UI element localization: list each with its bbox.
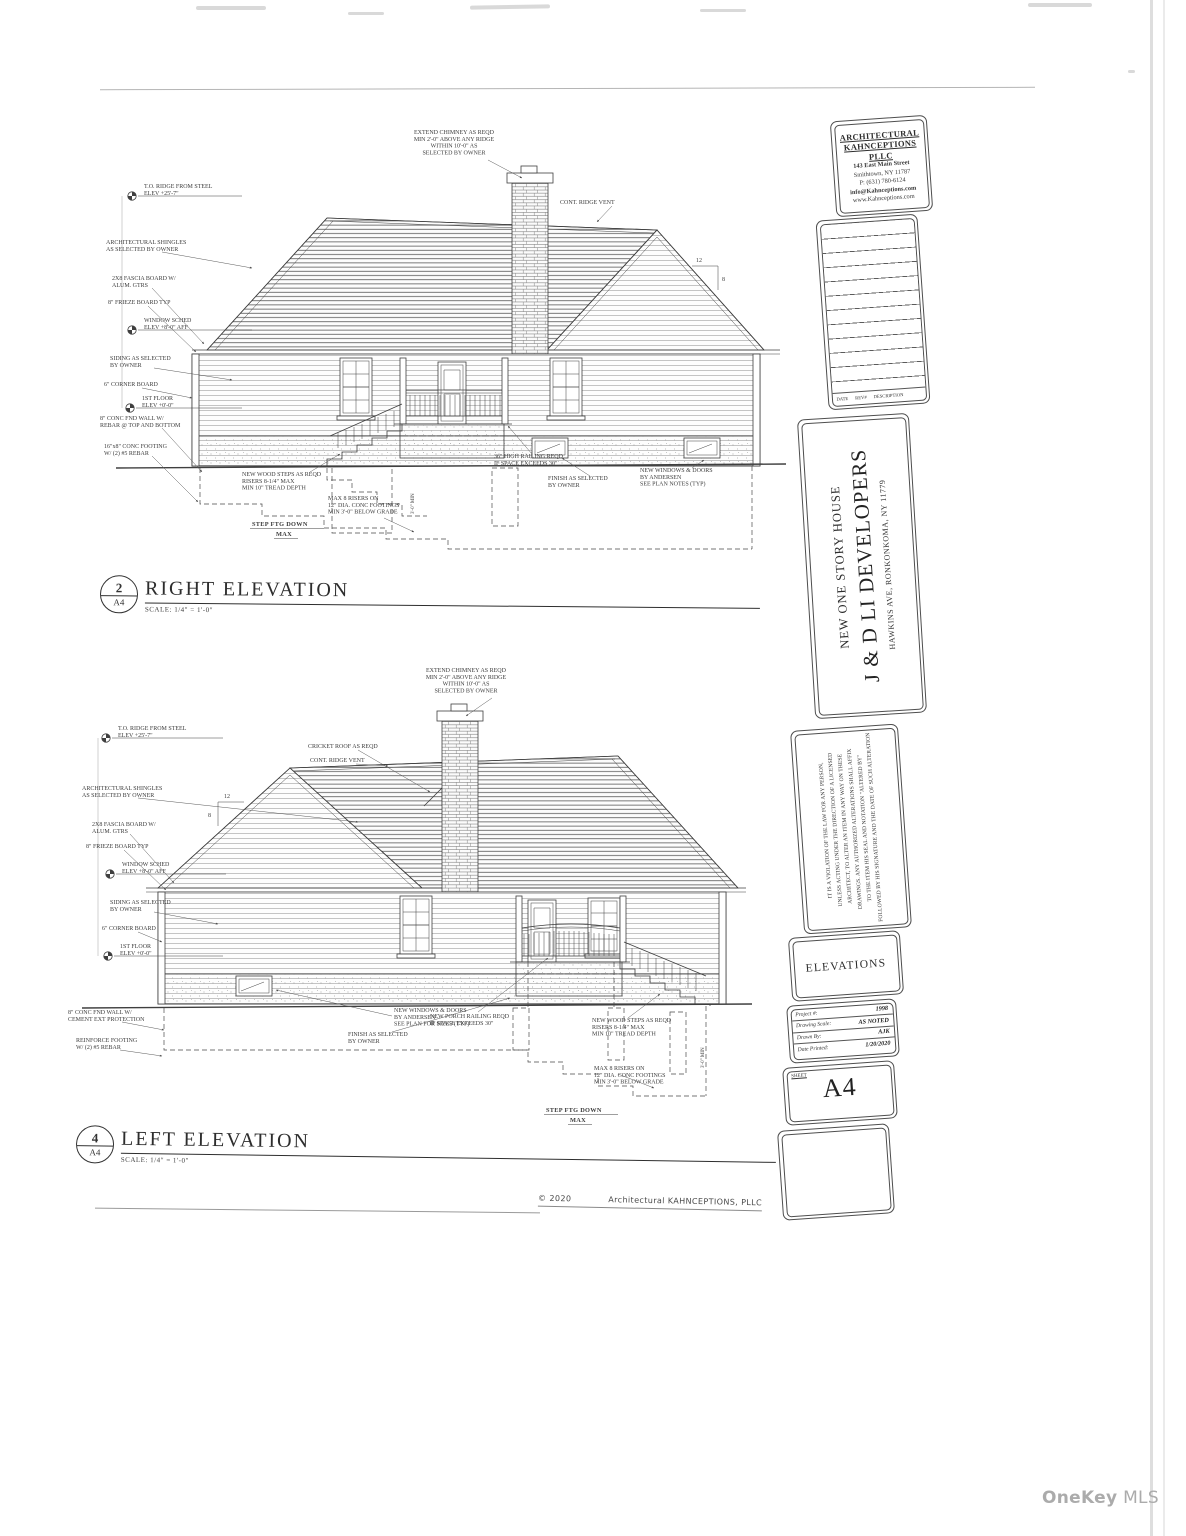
sheet-bottom-border (95, 1208, 540, 1214)
scan-artifact (470, 4, 550, 9)
drawn-by-value: AJK (878, 1028, 890, 1036)
finish-note: FINISH AS SELECTEDBY OWNER (548, 476, 608, 489)
foundation-wall-note: 8" CONC FND WALL W/CEMENT EXT PROTECTION (68, 1010, 145, 1023)
foundation-wall-note: 8" CONC FND WALL W/REBAR @ TOP AND BOTTO… (100, 416, 181, 429)
step-footing-note-2: MAX (276, 531, 292, 538)
steps-note: NEW WOOD STEPS AS REQDRISERS 8-1/4" MAXM… (242, 472, 322, 492)
disclaimer-box: IT IS A VIOLATION OF THE LAW FOR ANY PER… (790, 723, 912, 934)
copyright-year: © 2020 (538, 1194, 571, 1204)
left-elevation-drawing: T.O. RIDGE FROM STEELELEV +25'-7" WINDOW… (58, 656, 758, 1126)
project-number-label: Project #: (795, 1010, 818, 1018)
title-text-block: RIGHT ELEVATION SCALE: 1/4" = 1'-0" (145, 578, 760, 619)
siding-note: SIDING AS SELECTEDBY OWNER (110, 356, 171, 369)
disclaimer-content: IT IS A VIOLATION OF THE LAW FOR ANY PER… (794, 727, 908, 931)
pitch-rise-label: 12 (224, 794, 230, 800)
revision-description-header: DESCRIPTION (873, 392, 903, 399)
drawing-scale-label: Drawing Scale: (796, 1021, 832, 1029)
pitch-run-label: 8 (208, 813, 211, 819)
date-printed-value: 1/20/2020 (865, 1040, 891, 1049)
right-elevation-title: 2 A4 RIGHT ELEVATION SCALE: 1/4" = 1'-0" (100, 575, 760, 619)
railing-note: NEW PORCH RAILING REQDIF SPACE EXCEEDS 3… (430, 1014, 510, 1027)
project-title-box: NEW ONE STORY HOUSE J & D LI DEVELOPERS … (797, 413, 927, 719)
sheet-title-box: ELEVATIONS (788, 930, 904, 1002)
chimney-note: EXTEND CHIMNEY AS REQDMIN 2'-0" ABOVE AN… (426, 668, 507, 694)
project-info-box: Project #: 1998 Drawing Scale: AS NOTED … (786, 998, 900, 1064)
fascia-note: 2X8 FASCIA BOARD W/ALUM. GTRS (92, 822, 156, 835)
shingles-note: ARCHITECTURAL SHINGLESAS SELECTED BY OWN… (106, 240, 186, 253)
steps-note: NEW WOOD STEPS AS REQDRISERS 8-1/4" MAXM… (592, 1018, 672, 1038)
cricket-note: CRICKET ROOF AS REQD (308, 744, 378, 750)
step-footing-note: STEP FTG DOWN (252, 521, 308, 528)
shingles-note: ARCHITECTURAL SHINGLESAS SELECTED BY OWN… (82, 786, 162, 799)
footing-note: REINFORCE FOOTINGW/ (2) #5 REBAR (76, 1038, 138, 1051)
empty-stamp-area (781, 1127, 892, 1217)
floor-datum-note: 1ST FLOORELEV +0'-0" (120, 944, 152, 957)
scan-artifact (196, 6, 266, 10)
firm-logo-box: ARCHITECTURAL KAHNCEPTIONS PLLC 143 East… (830, 115, 933, 218)
finish-note: FINISH AS SELECTEDBY OWNER (348, 1032, 408, 1045)
pitch-rise-label: 12 (696, 258, 702, 264)
sheet-title: ELEVATIONS (792, 934, 901, 998)
pitch-run-label: 8 (722, 277, 725, 283)
revision-table: DATE REV# DESCRIPTION (819, 217, 927, 406)
step-footing-note: STEP FTG DOWN (546, 1107, 602, 1114)
watermark-suffix: MLS (1123, 1488, 1159, 1508)
ridge-datum-note: T.O. RIDGE FROM STEELELEV +25'-7" (144, 184, 213, 197)
window-datum-note: WINDOW SCHEDELEV +8'-0" AFF (144, 318, 192, 331)
ridge-vent-note: CONT. RIDGE VENT (310, 758, 365, 764)
min-depth-label: 3'-0" MIN (411, 493, 416, 514)
project-number-value: 1998 (875, 1005, 888, 1013)
frieze-note: 8" FRIEZE BOARD TYP (108, 300, 171, 306)
sheet-title-text: ELEVATIONS (805, 957, 886, 975)
detail-number: 2 (101, 581, 137, 597)
piers-note: MAX 8 RISERS ON12" DIA. CONC FOOTINGSMIN… (594, 1066, 665, 1086)
disclaimer-text: IT IS A VIOLATION OF THE LAW FOR ANY PER… (815, 732, 887, 925)
left-elevation-title: 4 A4 LEFT ELEVATION SCALE: 1/4" = 1'-0" (76, 1125, 776, 1173)
drawing-scale-value: AS NOTED (858, 1017, 889, 1026)
scan-artifact (1028, 3, 1092, 7)
grade-and-foundation (116, 464, 786, 549)
drawn-by-label: Drawn By: (797, 1033, 822, 1041)
piers-note: MAX 8 RISERS ON12" DIA. CONC FOOTINGSMIN… (328, 496, 399, 516)
project-info-table: Project #: 1998 Drawing Scale: AS NOTED … (790, 1002, 896, 1060)
basement-windows (236, 976, 272, 996)
detail-bubble: 2 A4 (100, 575, 138, 613)
step-footing-note-2: MAX (570, 1117, 586, 1124)
scanned-architectural-sheet: { "page": { "watermark_name": "OneKey", … (0, 0, 1186, 1536)
corner-board-note: 6" CORNER BOARD (104, 382, 158, 388)
min-depth-label: 3'-0" MIN (701, 1047, 706, 1068)
firm-logo-content: ARCHITECTURAL KAHNCEPTIONS PLLC 143 East… (834, 118, 930, 213)
revision-date-header: DATE (836, 396, 848, 402)
window-datum-note: WINDOW SCHEDELEV +8'-0" AFF (122, 862, 170, 875)
project-title-content: NEW ONE STORY HOUSE J & D LI DEVELOPERS … (801, 417, 924, 716)
roof (192, 218, 780, 354)
scan-artifact (700, 9, 746, 12)
scan-edge-shadow (1163, 0, 1165, 1536)
ridge-datum-note: T.O. RIDGE FROM STEELELEV +25'-7" (118, 726, 187, 739)
chimney-note: EXTEND CHIMNEY AS REQDMIN 2'-0" ABOVE AN… (414, 130, 495, 156)
railing-note: 36" HIGH RAILING REQDIF SPACE EXCEEDS 30… (494, 454, 564, 467)
copyright-line: © 2020 Architectural KAHNCEPTIONS, PLLC (538, 1194, 762, 1212)
detail-sheet-ref: A4 (113, 597, 124, 608)
revision-rev-header: REV# (855, 395, 867, 401)
scan-edge-shadow (1150, 0, 1153, 1536)
detail-number: 4 (77, 1131, 113, 1147)
sheet-top-border (100, 87, 1035, 90)
date-printed-label: Date Printed: (798, 1045, 829, 1053)
onekey-mls-watermark: OneKey MLS (1042, 1488, 1159, 1508)
empty-stamp-box (777, 1123, 895, 1221)
revision-table-box: DATE REV# DESCRIPTION (815, 214, 930, 411)
frieze-note: 8" FRIEZE BOARD TYP (86, 844, 149, 850)
scan-artifact (348, 12, 384, 15)
fascia-note: 2X8 FASCIA BOARD W/ALUM. GTRS (112, 276, 176, 289)
andersen-windows-note: NEW WINDOWS & DOORSBY ANDERSENSEE PLAN N… (640, 468, 713, 488)
title-text-block: LEFT ELEVATION SCALE: 1/4" = 1'-0" (121, 1128, 776, 1173)
ridge-vent-note: CONT. RIDGE VENT (560, 200, 615, 206)
drawing-title: RIGHT ELEVATION (145, 578, 760, 609)
scan-artifact (1128, 70, 1135, 73)
footing-note: 16"x8" CONC FOOTINGW/ (2) #5 REBAR (104, 444, 168, 457)
sheet-number-content: SHEET A4 (786, 1064, 894, 1122)
copyright-firm: Architectural KAHNCEPTIONS, PLLC (608, 1195, 762, 1207)
sheet-number-box: SHEET A4 (782, 1060, 898, 1126)
floor-datum-note: 1ST FLOORELEV +0'-0" (142, 396, 174, 409)
detail-bubble: 4 A4 (76, 1125, 115, 1164)
revision-rows (820, 218, 924, 392)
right-elevation-drawing: T.O. RIDGE FROM STEELELEV +25'-7" WINDOW… (92, 118, 792, 588)
corner-board-note: 6" CORNER BOARD (102, 926, 156, 932)
detail-sheet-ref: A4 (89, 1147, 100, 1158)
watermark-brand: OneKey (1042, 1488, 1117, 1508)
